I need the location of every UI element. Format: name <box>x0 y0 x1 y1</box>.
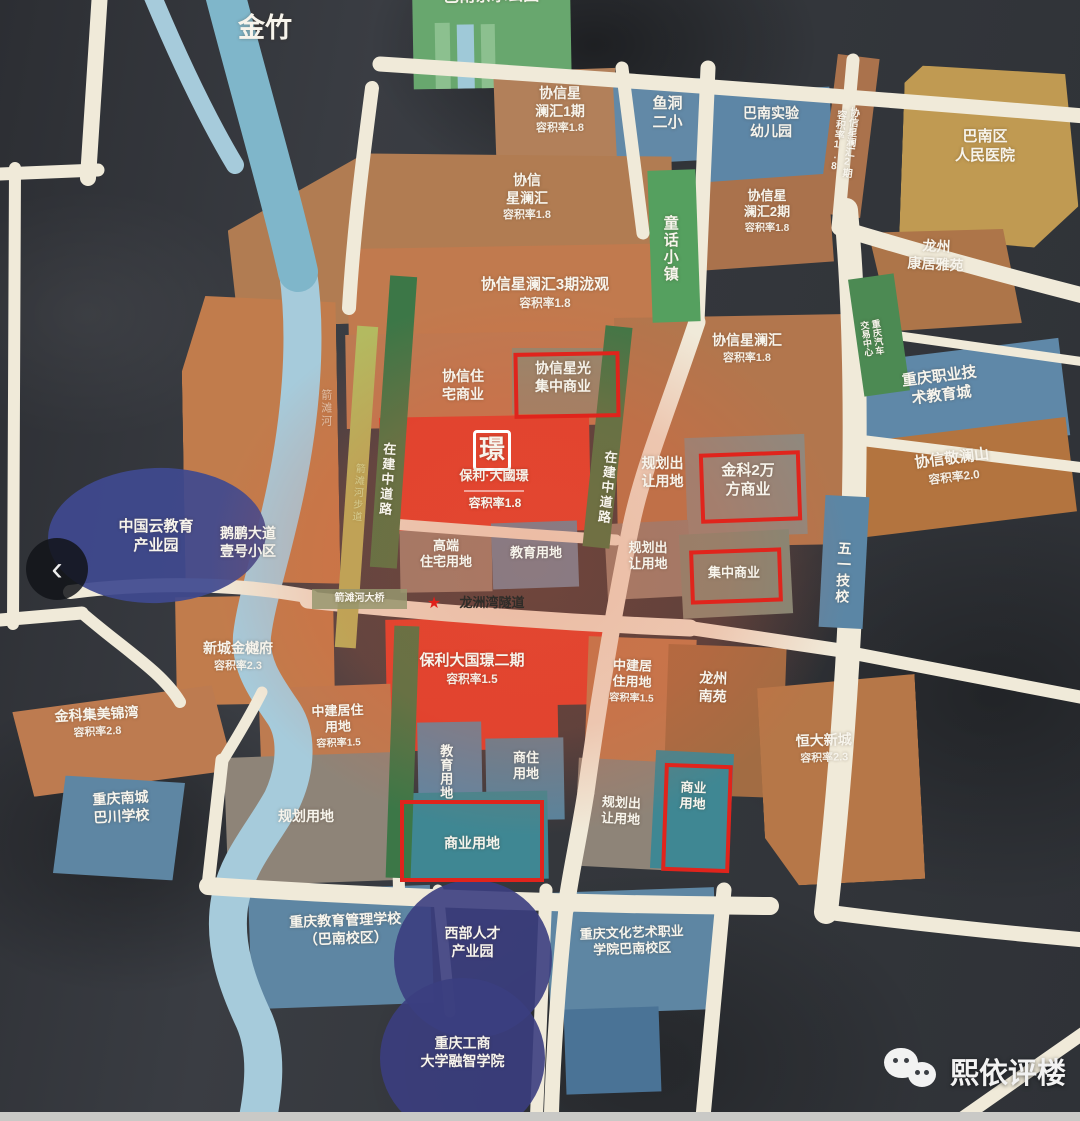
label-tunnel: 龙洲湾隧道 <box>444 595 540 611</box>
label-culture-art-college: 重庆文化艺术职业 学院巴南校区 <box>555 922 708 960</box>
label-xinglanhui-1: 协信星 澜汇1期容积率1.8 <box>505 85 615 136</box>
planning-map-photo: 巴南亲水公园 <box>0 0 1080 1121</box>
label-xinglanhui-3: 协信星澜汇3期泷观容积率1.8 <box>430 276 660 311</box>
label-yudong-school: 鱼洞 二小 <box>625 95 710 133</box>
highlight-box-centralized-commercial <box>689 547 783 604</box>
poly-tagline-bar <box>464 490 524 492</box>
back-button[interactable]: ‹ <box>26 538 88 600</box>
wechat-icon <box>884 1048 940 1094</box>
label-highend-residential: 高端 住宅用地 <box>404 538 488 571</box>
label-planned-transfer-3: 规划出 让用地 <box>585 793 657 829</box>
highlight-box-jinke-commercial <box>699 450 802 523</box>
label-mixed-commercial-residential: 商住 用地 <box>494 750 558 783</box>
label-bachuan-school: 重庆南城 巴川学校 <box>69 787 173 827</box>
label-jinzhu: 金竹 <box>205 12 325 46</box>
highlight-box-commercial-south <box>400 800 544 882</box>
label-longzhou-nanyuan: 龙州 南苑 <box>681 669 744 706</box>
label-hospital: 巴南区 人民医院 <box>920 128 1050 166</box>
label-edu-management-school: 重庆教育管理学校 （巴南校区） <box>257 909 433 950</box>
label-zhongjian-west: 中建居住 用地容积率1.5 <box>291 701 385 751</box>
label-xinglanhui-main: 协信 星澜汇容积率1.8 <box>478 172 576 223</box>
label-west-talent-park: 西部人才 产业园 <box>430 925 515 960</box>
label-planned-transfer-2: 规划出 让用地 <box>611 540 685 573</box>
label-bridge: 箭滩河大桥 <box>312 589 407 609</box>
label-planned-land: 规划用地 <box>260 808 352 826</box>
label-planned-transfer-1: 规划出 让用地 <box>625 455 700 490</box>
label-poly-brand: 保利·大國璟 <box>438 468 550 484</box>
label-river-name: 箭滩河 <box>318 368 332 448</box>
label-hepeng-block: 鹅鹏大道 壹号小区 <box>198 525 298 560</box>
label-xinglanhui-east: 协信星澜汇容积率1.8 <box>682 332 812 365</box>
label-xincheng-jinyuefu: 新城金樾府容积率2.3 <box>182 640 294 673</box>
label-residential-commercial: 协信住 宅商业 <box>422 368 504 403</box>
label-education-mid: 教育用地 <box>497 545 575 561</box>
label-gongshang-university: 重庆工商 大学融智学院 <box>400 1035 525 1070</box>
label-hengda-xincheng: 恒大新城容积率2.3 <box>774 730 873 767</box>
star-icon: ★ <box>424 594 444 614</box>
highlight-box-commercial-east <box>661 763 733 873</box>
watermark-text: 熙依评楼 <box>950 1050 1066 1092</box>
highlight-box-xingguang-commercial <box>513 351 620 419</box>
watermark: 熙依评楼 <box>884 1048 1066 1094</box>
label-poly-phase2: 保利大国璟二期容积率1.5 <box>396 652 548 687</box>
label-tonghua-town: 童话小镇 <box>660 186 679 311</box>
label-poly-far: 容积率1.8 <box>450 496 540 511</box>
photo-bottom-edge <box>0 1112 1080 1121</box>
chevron-left-icon: ‹ <box>51 550 62 589</box>
label-xinglanhui-2: 协信星 澜汇2期容积率1.8 <box>713 188 821 235</box>
label-kindergarten: 巴南实验 幼儿园 <box>712 105 830 140</box>
label-poly-logo: 璟 <box>468 430 516 471</box>
label-zhongjian-east: 中建居 住用地容积率1.5 <box>593 657 671 707</box>
label-kangju-yayuan: 龙州 康居雅苑 <box>875 235 997 276</box>
